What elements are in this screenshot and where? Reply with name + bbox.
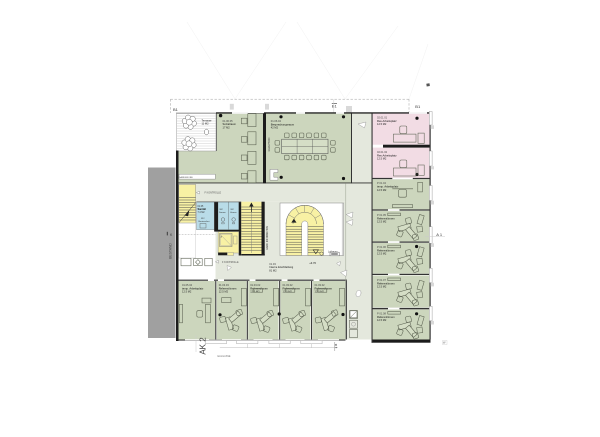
svg-text:Sanität: Sanität bbox=[198, 208, 207, 211]
svg-text:7.4 M2: 7.4 M2 bbox=[198, 212, 206, 214]
svg-text:BESTAND: BESTAND bbox=[169, 243, 173, 259]
svg-text:01.06.04: 01.06.04 bbox=[271, 119, 282, 123]
svg-text:12.5 M2: 12.5 M2 bbox=[377, 285, 387, 289]
svg-text:B1: B1 bbox=[415, 104, 421, 109]
svg-text:12.5 M2: 12.5 M2 bbox=[315, 290, 325, 294]
svg-text:01.03.03: 01.03.03 bbox=[219, 283, 230, 287]
svg-text:12.5 M2: 12.5 M2 bbox=[377, 318, 387, 322]
svg-text:P 01.07: P 01.07 bbox=[377, 278, 386, 282]
svg-text:AK 2: AK 2 bbox=[199, 337, 208, 355]
svg-text:Barrierefrei: Barrierefrei bbox=[199, 220, 210, 223]
svg-text:Herren: Herren bbox=[230, 211, 237, 214]
svg-text:GARD. INFORMATION: GARD. INFORMATION bbox=[266, 226, 269, 250]
svg-text:12.5 M2: 12.5 M2 bbox=[182, 290, 192, 294]
svg-text:12.5 M2: 12.5 M2 bbox=[377, 188, 387, 192]
svg-text:17 M2: 17 M2 bbox=[223, 125, 231, 129]
svg-text:WC: WC bbox=[220, 209, 224, 211]
svg-text:01.03.02: 01.03.02 bbox=[250, 283, 261, 287]
svg-text:01.05.04: 01.05.04 bbox=[182, 283, 193, 287]
svg-text:12.5 M2: 12.5 M2 bbox=[377, 157, 387, 161]
svg-text:Damen: Damen bbox=[219, 212, 227, 214]
svg-text:81 M2: 81 M2 bbox=[269, 268, 277, 272]
svg-text:B1: B1 bbox=[173, 107, 179, 112]
svg-text:F KONTROLLE: F KONTROLLE bbox=[205, 192, 222, 195]
svg-text:B1: B1 bbox=[332, 104, 338, 109]
svg-text:F KONTROLLE: F KONTROLLE bbox=[222, 261, 239, 264]
svg-text:12.5 M2: 12.5 M2 bbox=[377, 220, 387, 224]
svg-text:P 01.06: P 01.06 bbox=[377, 245, 386, 249]
svg-text:12.5 M2: 12.5 M2 bbox=[377, 122, 387, 126]
svg-text:P 01.04: P 01.04 bbox=[377, 181, 386, 185]
svg-text:12.5 M2: 12.5 M2 bbox=[250, 290, 260, 294]
svg-text:WC: WC bbox=[201, 218, 205, 220]
svg-text:01.03.02: 01.03.02 bbox=[315, 283, 326, 287]
svg-text:P 01.08: P 01.08 bbox=[377, 312, 386, 316]
svg-text:+3.70: +3.70 bbox=[309, 261, 316, 265]
svg-text:12.5 M2: 12.5 M2 bbox=[219, 290, 229, 294]
svg-text:11 M2: 11 M2 bbox=[202, 122, 210, 126]
svg-text:12.5 M2: 12.5 M2 bbox=[283, 290, 293, 294]
svg-text:P 01.05: P 01.05 bbox=[377, 213, 386, 217]
svg-text:GARDEROBE: GARDEROBE bbox=[179, 176, 194, 179]
svg-text:WC: WC bbox=[231, 209, 235, 211]
svg-text:42 M2: 42 M2 bbox=[271, 126, 279, 130]
svg-text:REZEPTION: REZEPTION bbox=[268, 137, 271, 151]
svg-text:ELGGASSE: ELGGASSE bbox=[218, 355, 231, 358]
svg-text:01.03: 01.03 bbox=[269, 262, 276, 266]
svg-text:02.01.02: 02.01.02 bbox=[377, 150, 388, 154]
svg-text:02.01.01: 02.01.01 bbox=[377, 116, 388, 120]
svg-text:01.03.02: 01.03.02 bbox=[283, 283, 294, 287]
svg-text:12.5 M2: 12.5 M2 bbox=[377, 252, 387, 256]
